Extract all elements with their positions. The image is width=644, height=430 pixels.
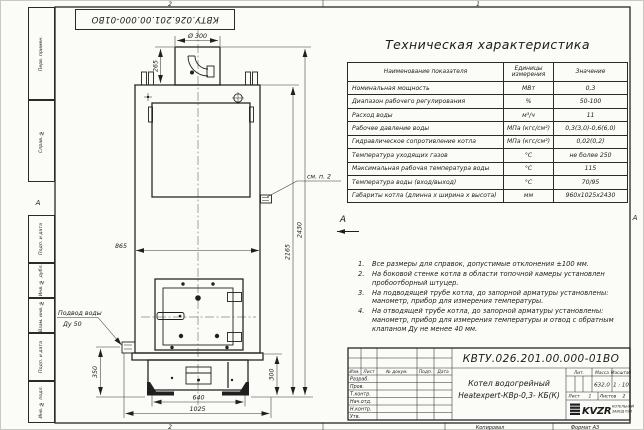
rail-inv-podl: Инв. № подл. bbox=[28, 381, 55, 423]
top-fittings bbox=[144, 92, 244, 104]
note-text: На подводящей трубе котла, до запорной а… bbox=[372, 289, 622, 307]
tb-sheets-value: 2 bbox=[623, 394, 626, 400]
furnace-door bbox=[155, 279, 243, 350]
title-block: Изм. Лист № докум. Подп. Дата Разраб. Пр… bbox=[348, 348, 634, 420]
door-hinge-bottom bbox=[228, 333, 242, 342]
tb-sheet-value: 1 bbox=[589, 394, 592, 400]
spec-cell-value: 0,02(0,2) bbox=[554, 136, 627, 148]
spec-cell-value: 11 bbox=[554, 109, 627, 121]
tb-scale-value: 1 : 10 bbox=[613, 383, 629, 389]
tb-product-name-1: Котел водогрейный bbox=[468, 379, 550, 388]
zone-top-right: 1 bbox=[476, 1, 480, 8]
notes-list: 1. Все размеры для справок, допустимые о… bbox=[356, 260, 622, 335]
spec-cell-name: Гидравлическое сопротивление котла bbox=[348, 136, 504, 148]
dim-total-height: 2430 bbox=[297, 222, 304, 238]
spec-cell-value: 0,3 bbox=[554, 82, 627, 94]
spec-table-title: Техническая характеристика bbox=[347, 37, 628, 52]
spec-row: Рабочее давление воды МПа (кгс/см²) 0,3(… bbox=[348, 122, 627, 135]
tb-sheets-label: Листов bbox=[599, 394, 617, 400]
zone-right-a: А bbox=[632, 214, 638, 222]
tb-row-prov: Пров. bbox=[350, 384, 364, 390]
note-text: На боковой стенке котла в области топочн… bbox=[372, 270, 622, 288]
ash-hatch bbox=[186, 367, 211, 384]
dim-overall-width: 1025 bbox=[189, 406, 205, 413]
rail-vzam-inv: Взам. инв. № bbox=[28, 298, 55, 333]
tb-col-data: Дата bbox=[436, 369, 449, 375]
view-a-arrow: А bbox=[337, 215, 359, 232]
top-stamp-doc-number: КВТУ.026.201.00.000-01ВО bbox=[75, 9, 235, 30]
spec-row: Диапазон рабочего регулирования % 50-100 bbox=[348, 95, 627, 108]
spec-cell-name: Номинальная мощность bbox=[348, 82, 504, 94]
spec-cell-name: Рабочее давление воды bbox=[348, 122, 504, 134]
spec-cell-unit: м³/ч bbox=[504, 109, 554, 121]
spec-cell-value: 70/95 bbox=[554, 176, 627, 188]
spec-cell-unit: МВт bbox=[504, 82, 554, 94]
note-item: 1. Все размеры для справок, допустимые о… bbox=[356, 260, 622, 269]
spec-cell-unit: МПа (кгс/см²) bbox=[504, 122, 554, 134]
boiler-body bbox=[135, 85, 260, 353]
note-text: Все размеры для справок, допустимые откл… bbox=[372, 260, 622, 269]
zone-top-left: 2 bbox=[168, 1, 172, 8]
tb-lit-label: Лит. bbox=[573, 370, 584, 376]
spec-row: Гидравлическое сопротивление котла МПа (… bbox=[348, 136, 627, 149]
spec-row: Температура воды (вход/выход) °С 70/95 bbox=[348, 176, 627, 189]
dim-inlet-height: 350 bbox=[92, 366, 99, 378]
rail-label: Перв. примен. bbox=[39, 36, 44, 71]
see-note-callout: см. п. 2 bbox=[267, 174, 341, 198]
kvzr-caption-1: КОТЕЛЬНЫЙ bbox=[612, 404, 634, 409]
rail-inv-dubl: Инв. № дубл. bbox=[28, 263, 55, 298]
rail-podp-data-2: Подп. и дата bbox=[28, 333, 55, 381]
door-hinge-top bbox=[228, 293, 242, 302]
note-number: 3. bbox=[356, 289, 372, 307]
spec-header-row: Наименование показателя Единицы измерени… bbox=[348, 63, 627, 82]
tb-sheet-label: Лист bbox=[567, 394, 580, 400]
kvzr-logo-text: KVZR bbox=[582, 406, 611, 417]
foot-left bbox=[147, 382, 174, 396]
water-inlet-callout: Подвод воды Ду 50 bbox=[57, 310, 122, 345]
rail-label: Подп. и дата bbox=[39, 341, 44, 373]
tb-product-name-2: Heatexpert-КВр-0,3- КБ(К) bbox=[458, 391, 560, 400]
spec-cell-name: Максимальная рабочая температура воды bbox=[348, 163, 504, 175]
note-number: 4. bbox=[356, 307, 372, 334]
spec-cell-unit: МПа (кгс/см²) bbox=[504, 136, 554, 148]
zone-left-a: А bbox=[35, 199, 41, 207]
spec-cell-unit: °С bbox=[504, 149, 554, 161]
note-item: 4. На отводящей трубе котла, до запорной… bbox=[356, 307, 622, 334]
tb-scale-label: Масштаб bbox=[611, 370, 632, 376]
rail-label: Подп. и дата bbox=[39, 223, 44, 255]
rail-label: Взам. инв. № bbox=[39, 300, 44, 332]
spec-cell-value: 115 bbox=[554, 163, 627, 175]
rail-podp-data-1: Подп. и дата bbox=[28, 215, 55, 263]
dim-base-width: 640 bbox=[192, 395, 204, 402]
kvzr-logo-icon bbox=[570, 404, 580, 416]
tb-doc-number: КВТУ.026.201.00.000-01ВО bbox=[463, 353, 620, 365]
bottom-plate bbox=[132, 353, 263, 360]
spec-header-value: Значение bbox=[554, 63, 627, 81]
tb-row-razrab: Разраб. bbox=[350, 377, 369, 383]
tb-col-docnum: № докум. bbox=[385, 369, 408, 375]
kvzr-caption-2: ЗАВОД РЭП bbox=[612, 410, 633, 414]
tb-mass-value: 632,0 bbox=[594, 383, 610, 389]
rail-sprav-no: Справ. № bbox=[28, 100, 55, 182]
tb-col-list: Лист bbox=[362, 369, 375, 375]
tb-col-podp: Подп. bbox=[419, 369, 432, 375]
dim-body-width: 865 bbox=[115, 243, 127, 250]
water-inlet-fitting bbox=[122, 342, 135, 353]
note-number: 1. bbox=[356, 260, 372, 269]
spec-cell-value: 0,3(3,0)-0,6(6,0) bbox=[554, 122, 627, 134]
spec-cell-unit: °С bbox=[504, 163, 554, 175]
tb-row-tkontr: Т.контр. bbox=[350, 392, 371, 398]
tb-row-nachotd: Нач.отд. bbox=[350, 399, 371, 405]
tb-row-utv: Утв. bbox=[350, 414, 360, 420]
spec-header-unit: Единицы измерения bbox=[504, 63, 554, 81]
tb-row-nkontr: Н.контр. bbox=[350, 407, 371, 413]
sampling-fitting bbox=[261, 195, 272, 203]
rail-label: Инв. № подл. bbox=[39, 386, 44, 418]
footer-copy-label: Копировал bbox=[476, 425, 505, 430]
spec-row: Максимальная рабочая температура воды °С… bbox=[348, 163, 627, 176]
water-inlet-label-2: Ду 50 bbox=[62, 321, 82, 328]
spec-cell-unit: °С bbox=[504, 176, 554, 188]
note-number: 2. bbox=[356, 270, 372, 288]
spec-cell-unit: мм bbox=[504, 190, 554, 202]
zone-bottom-left: 2 bbox=[168, 424, 172, 430]
dim-base-height: 300 bbox=[269, 368, 276, 380]
spec-cell-name: Габариты котла (длинна х ширина х высота… bbox=[348, 190, 504, 202]
spec-cell-name: Температура воды (вход/выход) bbox=[348, 176, 504, 188]
rail-perv-primen: Перв. примен. bbox=[28, 7, 55, 100]
see-note-label: см. п. 2 bbox=[307, 174, 331, 181]
spec-cell-value: 960х1025х2430 bbox=[554, 190, 627, 202]
dim-chimney-height: 265 bbox=[153, 60, 160, 72]
note-item: 2. На боковой стенке котла в области топ… bbox=[356, 270, 622, 288]
upper-panel bbox=[149, 103, 254, 197]
rail-label: Справ. № bbox=[39, 130, 44, 153]
drawing-sheet: Б bbox=[0, 0, 644, 430]
tb-mass-label: Масса bbox=[595, 370, 609, 376]
spec-cell-value: не более 250 bbox=[554, 149, 627, 161]
spec-row: Расход воды м³/ч 11 bbox=[348, 109, 627, 122]
dim-chimney-dia: Ø 300 bbox=[187, 32, 207, 40]
spec-cell-value: 50-100 bbox=[554, 95, 627, 107]
tb-col-izm: Изм. bbox=[349, 369, 359, 375]
rail-label: Инв. № дубл. bbox=[39, 264, 44, 296]
spec-row: Температура уходящих газов °С не более 2… bbox=[348, 149, 627, 162]
spec-cell-name: Температура уходящих газов bbox=[348, 149, 504, 161]
note-item: 3. На подводящей трубе котла, до запорно… bbox=[356, 289, 622, 307]
spec-cell-name: Диапазон рабочего регулирования bbox=[348, 95, 504, 107]
spec-row: Габариты котла (длинна х ширина х высота… bbox=[348, 190, 627, 202]
spec-row: Номинальная мощность МВт 0,3 bbox=[348, 82, 627, 95]
spec-table: Наименование показателя Единицы измерени… bbox=[347, 62, 628, 203]
note-text: На отводящей трубе котла, до запорной ар… bbox=[372, 307, 622, 334]
boiler-front-view: Б bbox=[57, 10, 359, 408]
water-inlet-label-1: Подвод воды bbox=[58, 310, 102, 317]
chimney-elbow bbox=[188, 56, 214, 77]
dim-body-height: 2165 bbox=[285, 244, 292, 260]
view-a-label: А bbox=[339, 215, 346, 225]
foot-right bbox=[222, 382, 249, 396]
spec-cell-unit: % bbox=[504, 95, 554, 107]
spec-cell-name: Расход воды bbox=[348, 109, 504, 121]
spec-header-name: Наименование показателя bbox=[348, 63, 504, 81]
footer-format-label: Формат А3 bbox=[571, 425, 599, 430]
